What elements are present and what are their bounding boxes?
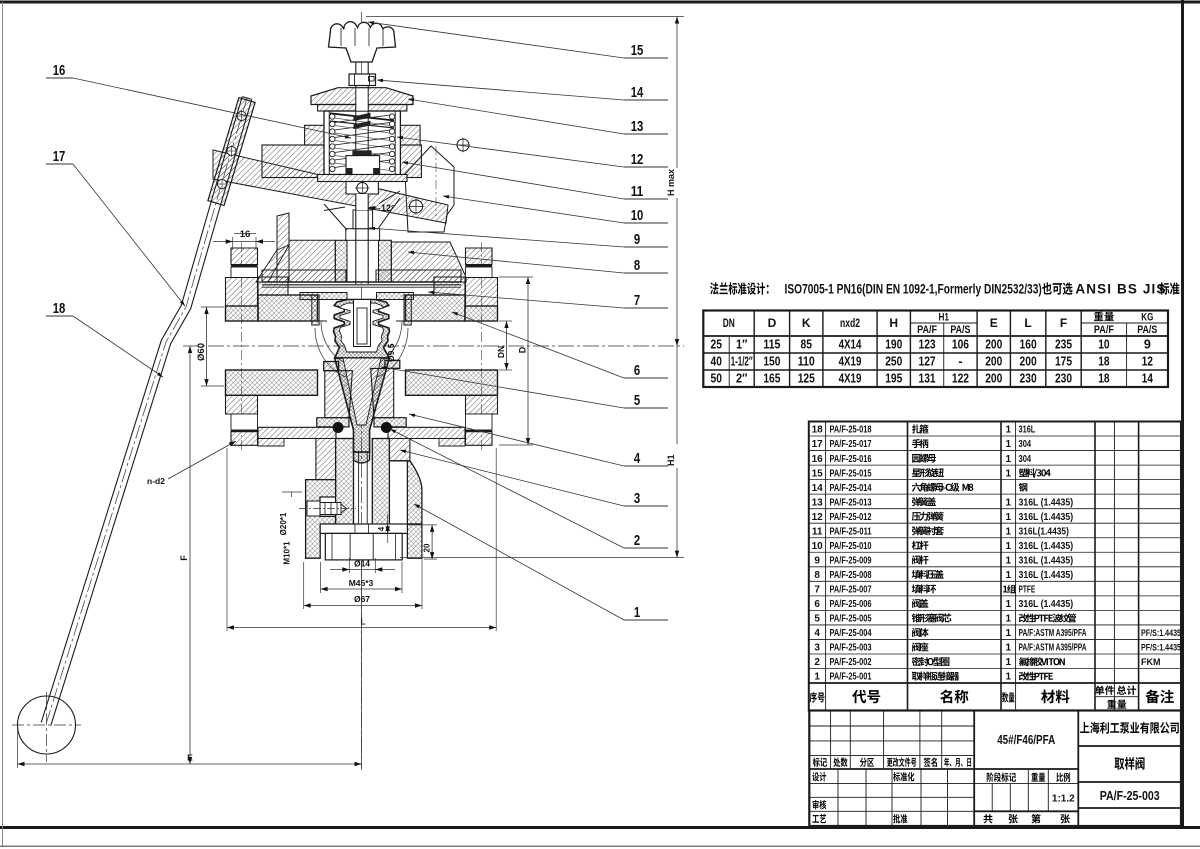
svg-text:316L (1.4435): 316L (1.4435): [1019, 599, 1074, 610]
svg-text:3: 3: [814, 643, 820, 654]
svg-text:8: 8: [634, 257, 640, 274]
svg-text:1: 1: [634, 604, 640, 621]
svg-text:18: 18: [1098, 372, 1109, 386]
svg-text:PA/F-25-016: PA/F-25-016: [830, 454, 872, 465]
svg-text:17: 17: [812, 439, 824, 450]
svg-text:H1: H1: [666, 454, 676, 466]
svg-text:15: 15: [812, 468, 824, 479]
svg-text:122: 122: [952, 372, 969, 386]
svg-text:1: 1: [814, 672, 820, 683]
svg-text:16: 16: [53, 62, 66, 79]
svg-text:13: 13: [812, 497, 824, 508]
svg-text:PA/F-25-011: PA/F-25-011: [830, 526, 872, 537]
svg-text:25: 25: [711, 338, 722, 352]
svg-text:4: 4: [634, 450, 641, 467]
svg-text:PA/F-25-013: PA/F-25-013: [830, 497, 872, 508]
svg-text:PA/F-25-002: PA/F-25-002: [830, 657, 872, 668]
svg-text:15: 15: [631, 42, 644, 59]
svg-text:F: F: [179, 555, 189, 561]
svg-text:PA/S: PA/S: [950, 324, 970, 336]
svg-text:4: 4: [814, 628, 820, 639]
svg-text:PA/F-25-008: PA/F-25-008: [830, 570, 872, 581]
svg-text:17: 17: [53, 148, 66, 165]
svg-text:40: 40: [711, 355, 722, 369]
svg-text:1: 1: [1006, 526, 1012, 537]
svg-text:10: 10: [812, 541, 824, 552]
svg-text:4X14: 4X14: [839, 338, 862, 352]
svg-text:150: 150: [763, 355, 780, 369]
svg-text:1″: 1″: [736, 338, 747, 352]
svg-text:PA/F-25-005: PA/F-25-005: [830, 614, 872, 625]
svg-text:PA/S: PA/S: [1137, 324, 1157, 336]
svg-text:K: K: [802, 316, 811, 330]
svg-text:304: 304: [1019, 454, 1032, 465]
svg-text:1: 1: [1006, 672, 1012, 683]
svg-text:12°: 12°: [381, 203, 395, 213]
svg-text:-: -: [958, 355, 962, 369]
svg-text:200: 200: [1020, 355, 1037, 369]
svg-text:235: 235: [1055, 338, 1072, 352]
svg-text:316L (1.4435): 316L (1.4435): [1019, 497, 1074, 508]
svg-text:Ø60: Ø60: [196, 343, 207, 361]
svg-text:230: 230: [1055, 372, 1072, 386]
svg-text:14: 14: [631, 84, 644, 101]
svg-text:12: 12: [812, 512, 824, 523]
svg-text:125: 125: [798, 372, 815, 386]
svg-text:Ø20*1: Ø20*1: [279, 512, 288, 535]
svg-text:1: 1: [1006, 541, 1012, 552]
svg-text:PA/F-25-009: PA/F-25-009: [830, 555, 872, 566]
svg-text:nxd2: nxd2: [840, 316, 860, 330]
svg-text:18: 18: [812, 425, 824, 436]
svg-text:PA/F: PA/F: [917, 324, 937, 336]
svg-text:85: 85: [801, 338, 812, 352]
svg-text:PA/F:ASTM A395/PPA: PA/F:ASTM A395/PPA: [1019, 643, 1087, 654]
svg-text:7: 7: [634, 292, 640, 309]
svg-text:PA/F-25-007: PA/F-25-007: [830, 585, 872, 596]
svg-text:175: 175: [1055, 355, 1072, 369]
svg-text:PA/F-25-012: PA/F-25-012: [830, 512, 872, 523]
svg-text:PA/F-25-014: PA/F-25-014: [830, 483, 872, 494]
svg-text:PA/F-25-017: PA/F-25-017: [830, 439, 872, 450]
svg-text:DN: DN: [723, 316, 735, 330]
svg-text:131: 131: [919, 372, 936, 386]
svg-text:4X19: 4X19: [839, 355, 862, 369]
svg-text:ANSI BS JIS: ANSI BS JIS: [1075, 282, 1165, 297]
svg-text:50: 50: [711, 372, 722, 386]
svg-text:2″: 2″: [736, 372, 747, 386]
svg-text:PA/F-25-015: PA/F-25-015: [830, 468, 872, 479]
svg-text:1: 1: [1006, 614, 1012, 625]
svg-text:PA/F-25-004: PA/F-25-004: [830, 628, 872, 639]
svg-text:13: 13: [631, 118, 644, 135]
svg-text:200: 200: [985, 372, 1002, 386]
svg-text:16: 16: [812, 454, 824, 465]
svg-text:1: 1: [1006, 468, 1012, 479]
svg-text:165: 165: [763, 372, 780, 386]
svg-text:9: 9: [634, 231, 640, 248]
svg-text:F: F: [1060, 316, 1067, 330]
svg-text:7: 7: [814, 585, 820, 596]
svg-text:316L (1.4435): 316L (1.4435): [1019, 570, 1074, 581]
svg-text:1-1/2″: 1-1/2″: [731, 355, 753, 369]
svg-text:6: 6: [634, 362, 640, 379]
svg-text:10: 10: [631, 207, 644, 224]
svg-text:1: 1: [1006, 657, 1012, 668]
svg-text:6: 6: [814, 599, 820, 610]
svg-text:Ø14: Ø14: [354, 559, 370, 569]
svg-text:8: 8: [814, 570, 820, 581]
svg-text:1: 1: [1006, 497, 1012, 508]
svg-text:n-d2: n-d2: [147, 476, 165, 486]
svg-text:M10*1: M10*1: [283, 541, 292, 565]
svg-text:PA/F-25-006: PA/F-25-006: [830, 599, 872, 610]
svg-text:250: 250: [885, 355, 902, 369]
svg-text:195: 195: [885, 372, 902, 386]
svg-text:1: 1: [1006, 643, 1012, 654]
svg-text:D: D: [768, 316, 777, 330]
svg-text:H: H: [889, 316, 898, 330]
svg-text:18: 18: [1098, 355, 1109, 369]
svg-text:Ø67: Ø67: [354, 594, 370, 604]
svg-text:200: 200: [985, 338, 1002, 352]
svg-text:1: 1: [1006, 599, 1012, 610]
svg-text:PA/F-25-001: PA/F-25-001: [830, 672, 872, 683]
svg-text:PA/F-25-003: PA/F-25-003: [830, 643, 872, 654]
svg-text:316L: 316L: [1019, 425, 1036, 436]
svg-text:ISO7005-1 PN16(DIN EN 1092-1,F: ISO7005-1 PN16(DIN EN 1092-1,Formerly DI…: [785, 282, 1042, 297]
svg-text:304: 304: [1019, 439, 1032, 450]
svg-text:5: 5: [634, 392, 640, 409]
svg-text:1: 1: [1006, 570, 1012, 581]
svg-text:PA/F:ASTM A395/PFA: PA/F:ASTM A395/PFA: [1019, 628, 1087, 639]
svg-text:PF/S:1.4435: PF/S:1.4435: [1141, 628, 1181, 638]
svg-text:316L(1.4435): 316L(1.4435): [1019, 526, 1069, 537]
svg-text:190: 190: [885, 338, 902, 352]
svg-text:123: 123: [919, 338, 936, 352]
svg-text:3: 3: [634, 490, 640, 507]
svg-text:PF/S:1.4435: PF/S:1.4435: [1141, 643, 1181, 653]
svg-text:106: 106: [952, 338, 969, 352]
svg-text:5: 5: [814, 614, 820, 625]
svg-text:1:1.2: 1:1.2: [1052, 794, 1075, 805]
svg-text:1: 1: [1006, 628, 1012, 639]
svg-text:KG: KG: [1141, 312, 1153, 324]
svg-text:14: 14: [812, 483, 824, 494]
svg-text:PTFE: PTFE: [1019, 585, 1036, 596]
svg-text:127: 127: [919, 355, 936, 369]
svg-text:PA/F-25-018: PA/F-25-018: [830, 425, 872, 436]
svg-text:D: D: [518, 346, 528, 353]
svg-text:H max: H max: [666, 169, 676, 196]
svg-text:115: 115: [763, 338, 780, 352]
svg-text:11: 11: [631, 183, 644, 200]
svg-text:1: 1: [1006, 439, 1012, 450]
svg-text:DN: DN: [496, 346, 506, 358]
svg-text:1: 1: [1006, 512, 1012, 523]
svg-text:1: 1: [1006, 425, 1012, 436]
svg-text:316L (1.4435): 316L (1.4435): [1019, 512, 1074, 523]
svg-text:1: 1: [1006, 555, 1012, 566]
svg-text:Ø9.5: Ø9.5: [386, 343, 396, 362]
svg-text:4X19: 4X19: [839, 372, 862, 386]
svg-text:FKM: FKM: [1141, 657, 1161, 667]
svg-text:316L (1.4435): 316L (1.4435): [1019, 555, 1074, 566]
svg-text:2: 2: [634, 532, 640, 549]
svg-text:14: 14: [1142, 372, 1153, 386]
svg-text:18: 18: [53, 300, 66, 317]
svg-text:10: 10: [1098, 338, 1109, 352]
svg-text:9: 9: [814, 555, 820, 566]
svg-text:L: L: [1024, 316, 1031, 330]
svg-text:110: 110: [798, 355, 815, 369]
svg-text:160: 160: [1020, 338, 1037, 352]
svg-text:11: 11: [812, 526, 823, 537]
svg-text:M45*3: M45*3: [349, 578, 374, 588]
svg-text:9: 9: [1144, 338, 1151, 352]
svg-text:45#/F46/PFA: 45#/F46/PFA: [997, 733, 1055, 747]
svg-text:2: 2: [814, 657, 820, 668]
svg-text:12: 12: [631, 151, 644, 168]
svg-text:230: 230: [1020, 372, 1037, 386]
svg-text:PA/F: PA/F: [1094, 324, 1114, 336]
svg-text:H1: H1: [939, 312, 950, 324]
svg-text:4: 4: [377, 526, 386, 531]
svg-text:1: 1: [1006, 454, 1012, 465]
svg-text:12: 12: [1142, 355, 1153, 369]
svg-text:20: 20: [423, 543, 432, 552]
svg-text:PA/F-25-003: PA/F-25-003: [1100, 788, 1160, 803]
svg-text:E: E: [990, 316, 998, 330]
svg-text:PA/F-25-010: PA/F-25-010: [830, 541, 872, 552]
svg-text:200: 200: [985, 355, 1002, 369]
svg-text:316L (1.4435): 316L (1.4435): [1019, 541, 1074, 552]
svg-text:16: 16: [240, 229, 251, 240]
